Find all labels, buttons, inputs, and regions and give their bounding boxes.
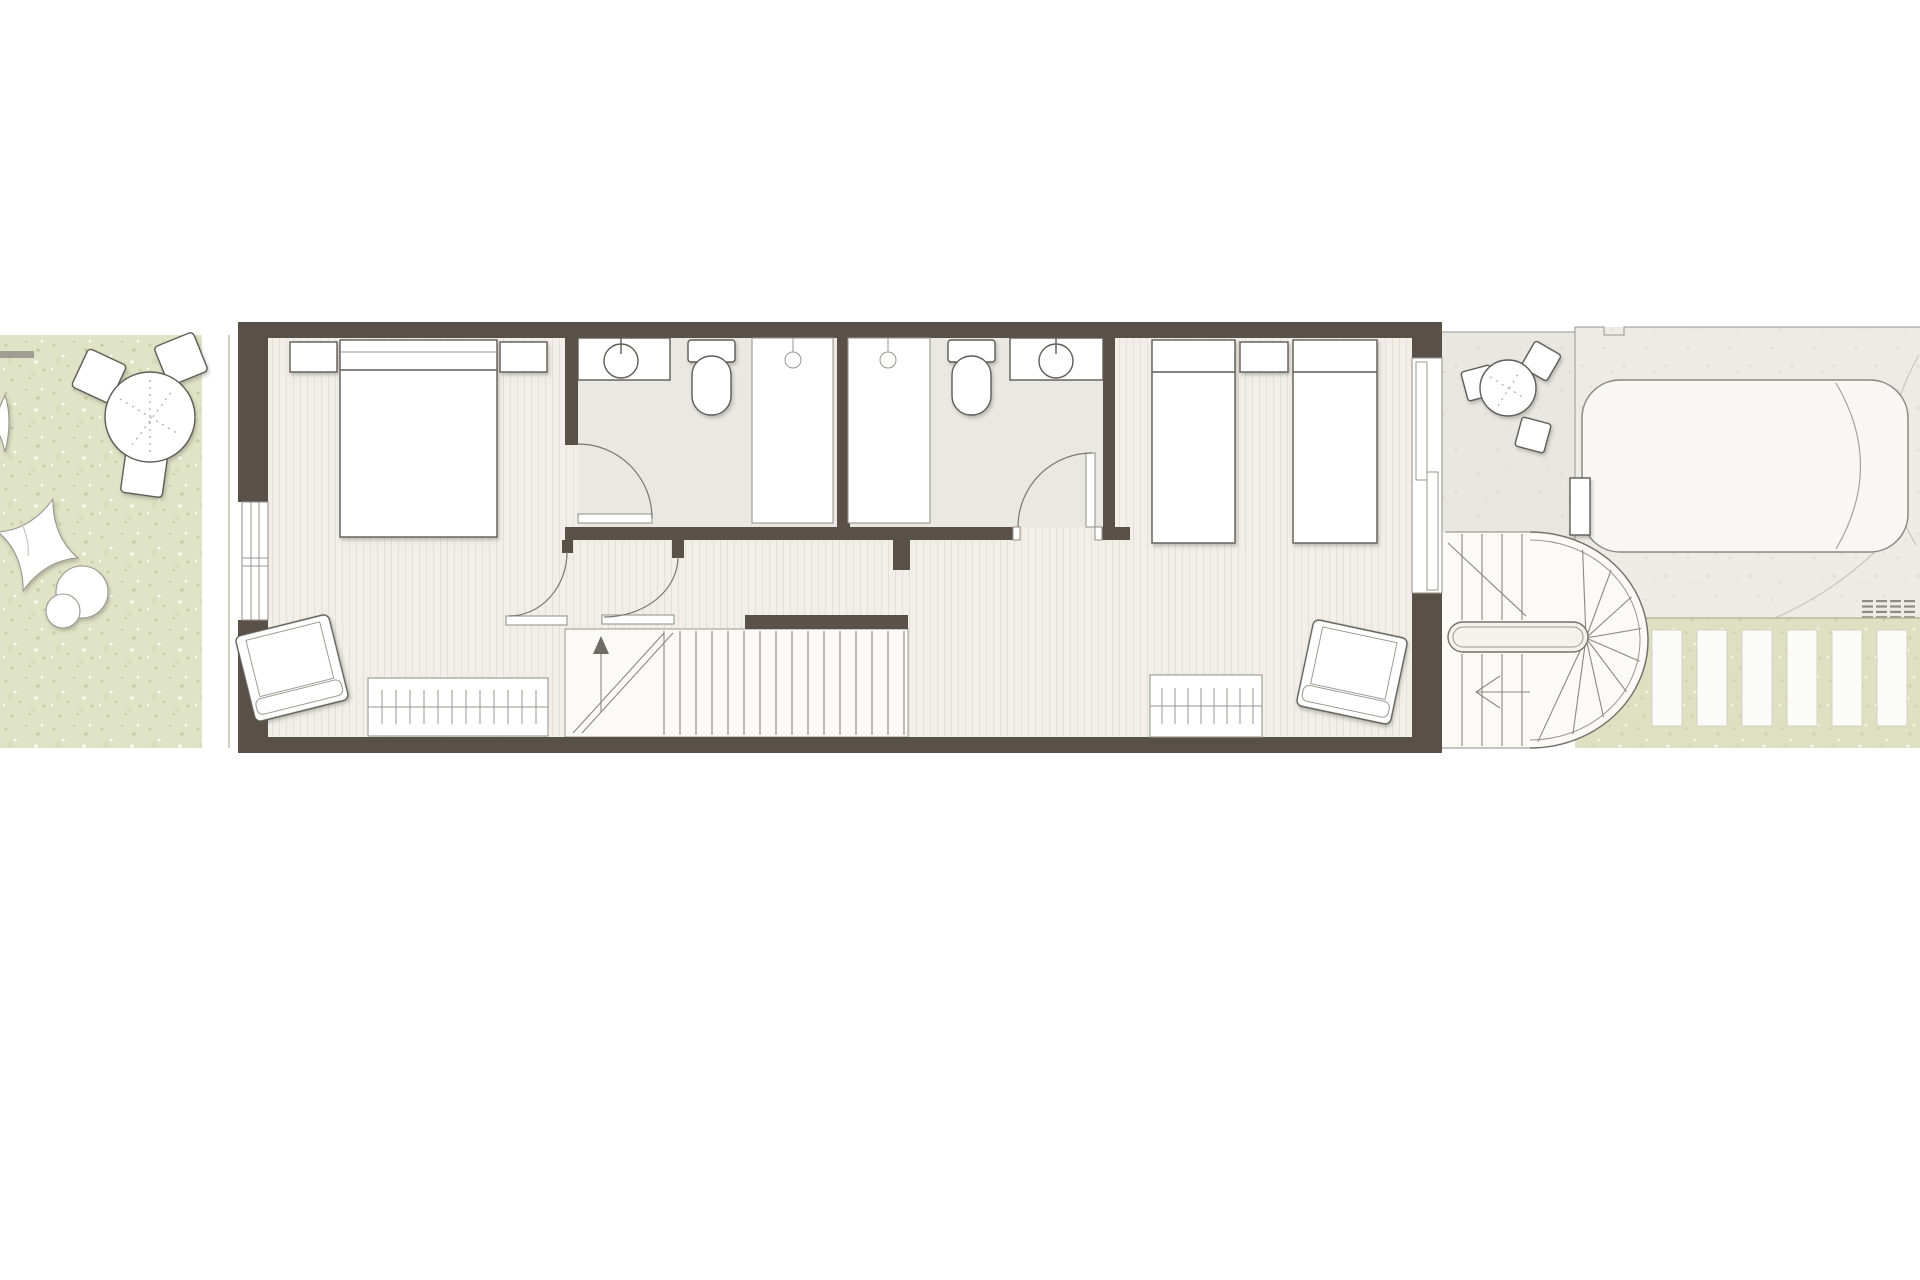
floor-plan-drawing — [0, 0, 1920, 1280]
grille-bar — [1862, 611, 1873, 613]
door-jamb — [1013, 527, 1020, 540]
radiator — [368, 678, 548, 736]
pouf — [46, 594, 80, 628]
paver — [1697, 630, 1727, 726]
north-wall — [238, 322, 1442, 338]
grille-bar — [1862, 600, 1873, 602]
door-stub — [562, 540, 573, 553]
armchair — [1296, 619, 1408, 725]
stairwell-wall — [745, 615, 908, 629]
toilet — [948, 340, 995, 415]
family-bath-door-leaf — [1086, 453, 1095, 527]
building — [235, 322, 1442, 753]
nightstand — [1240, 342, 1288, 372]
grille-bar — [1904, 605, 1915, 607]
shower-tray — [752, 338, 833, 523]
east-wall-upper — [1412, 322, 1442, 358]
grille-bar — [1876, 600, 1887, 602]
driveway — [1575, 327, 1920, 618]
grille-bar — [1862, 605, 1873, 607]
toilet — [688, 340, 735, 415]
paver — [1742, 630, 1772, 726]
internal-staircase — [565, 629, 908, 737]
ensuite-door-leaf — [578, 514, 652, 523]
toilet-bowl — [952, 356, 991, 415]
bedroom-door-leaf — [506, 616, 567, 625]
grille-bar — [1890, 611, 1901, 613]
garden-step — [0, 351, 34, 358]
garden-window — [242, 502, 268, 620]
nightstand — [500, 342, 547, 372]
toilet-bowl — [692, 356, 731, 415]
west-wall-upper — [238, 322, 268, 502]
hallway-wall-left — [565, 527, 1020, 540]
door-jamb — [1095, 527, 1102, 540]
floor-plan-canvas — [0, 0, 1920, 1280]
single-bed — [1293, 340, 1377, 543]
grille-bar — [1890, 605, 1901, 607]
nightstand — [290, 342, 337, 372]
bedroom-bath-partition — [565, 338, 578, 445]
stair-stub-wall — [893, 540, 910, 570]
grille-bar — [1876, 605, 1887, 607]
single-bed — [1152, 340, 1235, 543]
grille-bar — [1876, 611, 1887, 613]
paver — [1832, 630, 1862, 726]
grille-bar — [1890, 600, 1901, 602]
car — [1582, 380, 1908, 552]
terrace-pier — [1570, 478, 1590, 535]
bath-twinroom-partition — [1103, 338, 1115, 530]
radiator — [1150, 675, 1262, 737]
grille-bar — [1904, 600, 1915, 602]
grille-bar — [1904, 611, 1915, 613]
paver — [1652, 630, 1682, 726]
east-wall-lower — [1412, 593, 1442, 753]
garden-left — [0, 332, 229, 748]
door-stub — [672, 540, 684, 558]
paver — [1877, 630, 1907, 726]
shower-tray — [848, 338, 930, 523]
paver — [1787, 630, 1817, 726]
south-wall — [238, 737, 1442, 753]
